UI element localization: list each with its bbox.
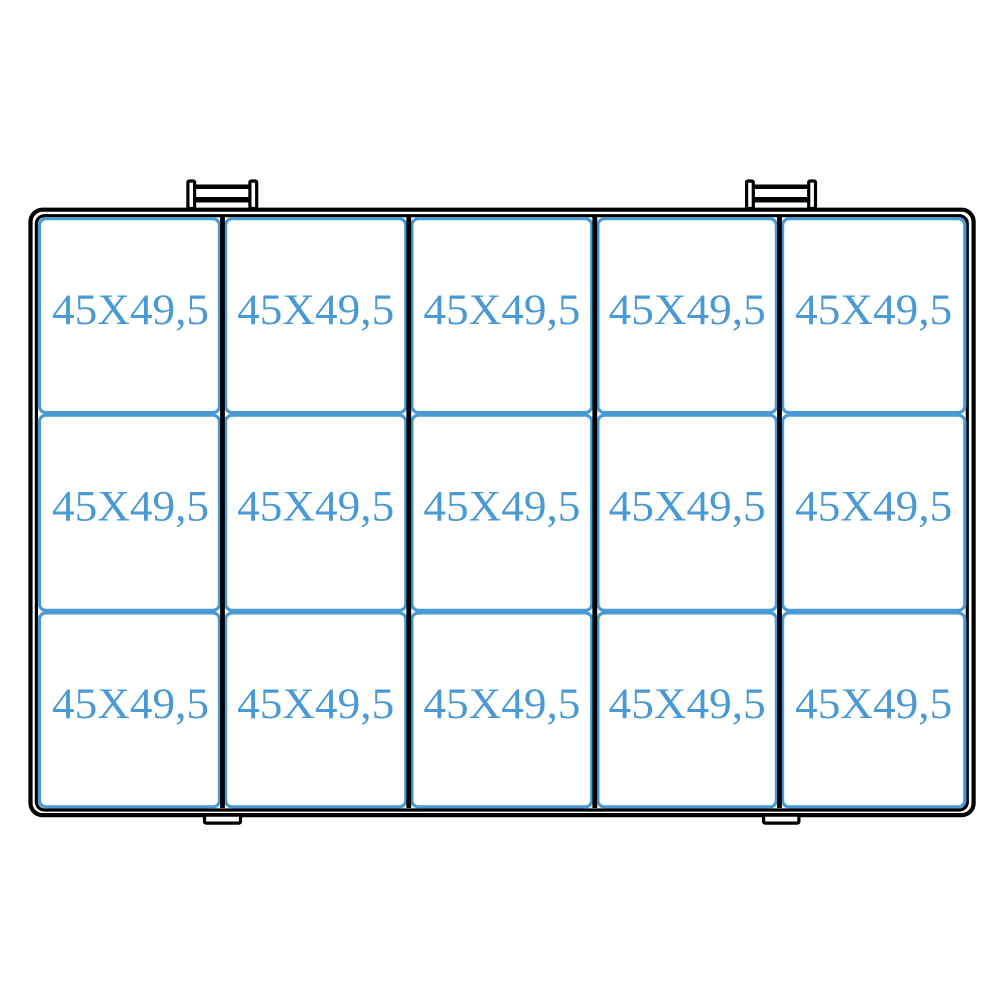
svg-text:45X49,5: 45X49,5 [237,680,394,728]
svg-text:45X49,5: 45X49,5 [795,680,952,728]
svg-text:45X49,5: 45X49,5 [795,286,952,334]
svg-text:45X49,5: 45X49,5 [237,286,394,334]
svg-text:45X49,5: 45X49,5 [423,680,580,728]
svg-text:45X49,5: 45X49,5 [237,483,394,531]
svg-text:45X49,5: 45X49,5 [609,483,766,531]
svg-text:45X49,5: 45X49,5 [423,286,580,334]
svg-text:45X49,5: 45X49,5 [609,680,766,728]
svg-text:45X49,5: 45X49,5 [52,483,209,531]
svg-text:45X49,5: 45X49,5 [52,680,209,728]
svg-text:45X49,5: 45X49,5 [795,483,952,531]
svg-text:45X49,5: 45X49,5 [609,286,766,334]
svg-text:45X49,5: 45X49,5 [52,286,209,334]
svg-text:45X49,5: 45X49,5 [423,483,580,531]
